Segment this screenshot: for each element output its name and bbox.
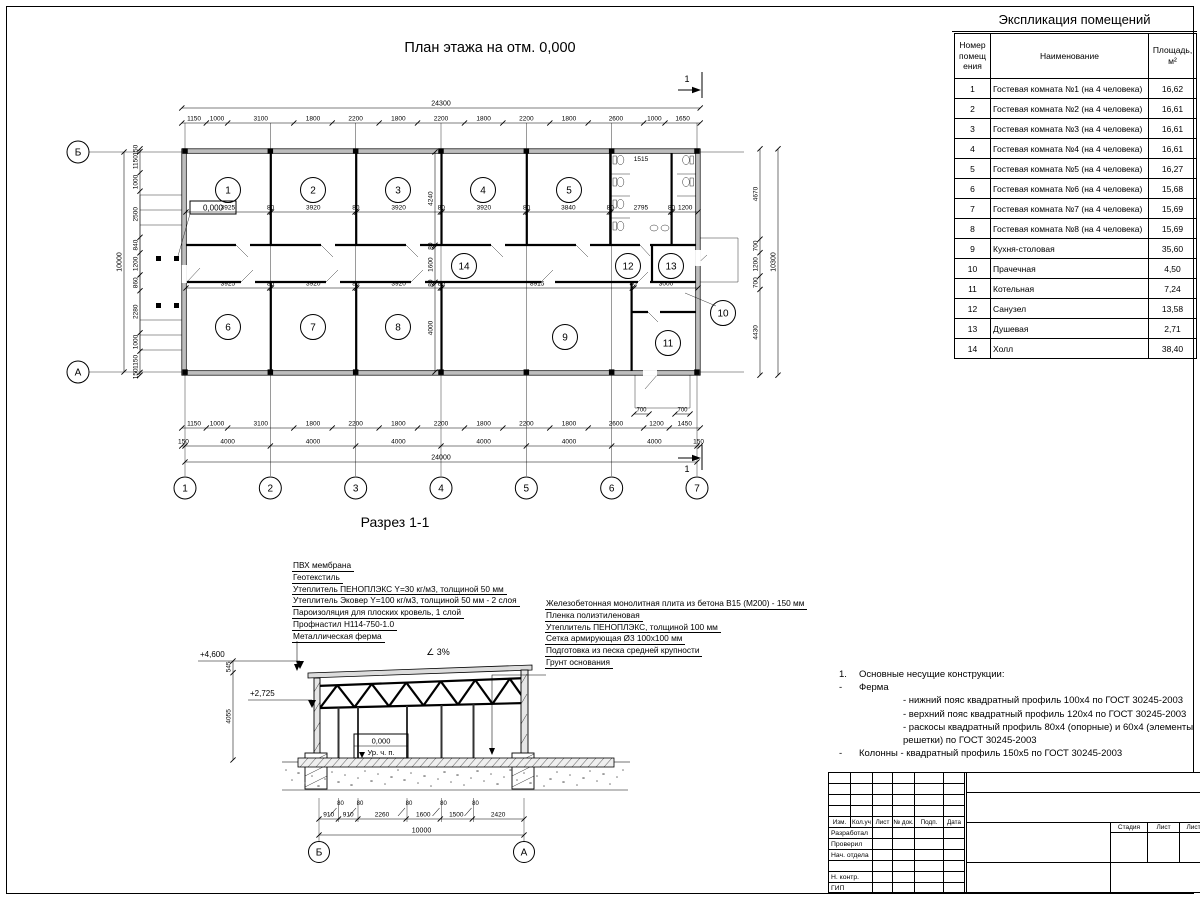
dim-label: 1000 bbox=[210, 116, 225, 123]
ground-dot bbox=[536, 775, 538, 777]
column-mark bbox=[438, 369, 444, 375]
room-area-cell: 13,58 bbox=[1149, 299, 1197, 319]
dim-label: 1800 bbox=[391, 421, 406, 428]
titleblock-cell bbox=[944, 839, 965, 850]
dim-label: 1000 bbox=[133, 174, 140, 189]
room-area-cell: 2,71 bbox=[1149, 319, 1197, 339]
dim-label: 0,000 bbox=[372, 737, 391, 746]
room-area-cell: 16,61 bbox=[1149, 139, 1197, 159]
dim-label: 3 bbox=[395, 186, 401, 197]
ground-dot bbox=[397, 769, 399, 771]
dim-label: 5 bbox=[524, 484, 530, 495]
titleblock-cell bbox=[873, 872, 893, 883]
dim-label: ∠ 3% bbox=[426, 647, 450, 657]
dim-leader bbox=[465, 808, 472, 816]
column-mark bbox=[182, 369, 188, 375]
dim-label: Б bbox=[75, 148, 82, 159]
ground-dot bbox=[602, 773, 604, 775]
ground-dot bbox=[337, 781, 339, 783]
truss-diagonal bbox=[424, 681, 441, 705]
ground-dot bbox=[569, 774, 571, 776]
dim-label: 80 bbox=[472, 801, 479, 807]
toilet-fixture bbox=[690, 178, 694, 186]
titleblock-cell bbox=[893, 861, 915, 872]
titleblock-cell bbox=[829, 861, 873, 872]
door-leaf bbox=[638, 272, 648, 282]
dim-label: 3920 bbox=[391, 205, 406, 212]
ground-dot bbox=[483, 780, 485, 782]
ground-dot bbox=[430, 785, 432, 787]
ground-dot bbox=[529, 782, 531, 784]
note-text: - раскосы квадратный профиль 80х4 (опорн… bbox=[859, 721, 1200, 747]
titleblock-cell bbox=[893, 784, 915, 795]
dim-label: 1200 bbox=[753, 257, 760, 272]
ground-dot bbox=[582, 777, 584, 779]
ground-dot bbox=[384, 783, 386, 785]
titleblock-stage-value bbox=[1110, 832, 1148, 863]
titleblock-cell: Изм. bbox=[829, 817, 851, 828]
toilet-fixture bbox=[683, 177, 690, 186]
door-opening bbox=[643, 370, 657, 376]
room-area-cell: 16,61 bbox=[1149, 119, 1197, 139]
dim-label: 1800 bbox=[476, 421, 491, 428]
note-item: -Ферма bbox=[833, 681, 1200, 694]
note-item: - раскосы квадратный профиль 80х4 (опорн… bbox=[833, 721, 1200, 747]
room-area-cell: 7,24 bbox=[1149, 279, 1197, 299]
room-name-cell: Гостевая комната №1 (на 4 человека) bbox=[991, 79, 1149, 99]
ground-dot bbox=[344, 774, 346, 776]
dim-label: 3100 bbox=[253, 421, 268, 428]
dim-label: 3925 bbox=[221, 281, 236, 288]
column-mark bbox=[156, 256, 161, 261]
col-header-area: Площадь, м² bbox=[1149, 34, 1197, 79]
room-number-cell: 3 bbox=[955, 119, 991, 139]
titleblock-cell-top bbox=[966, 772, 1200, 793]
dim-leader bbox=[398, 808, 405, 816]
note-item: - нижний пояс квадратный профиль 100х4 п… bbox=[833, 694, 1200, 707]
room-name-cell: Санузел bbox=[991, 299, 1149, 319]
dim-label: 700 bbox=[753, 240, 760, 251]
ground-dot bbox=[370, 780, 372, 782]
dim-label: 910 bbox=[343, 812, 354, 819]
room-name-cell: Гостевая комната №8 (на 4 человека) bbox=[991, 219, 1149, 239]
room-number-cell: 5 bbox=[955, 159, 991, 179]
dim-label: 8915 bbox=[530, 281, 545, 288]
dim-label: 4000 bbox=[391, 439, 406, 446]
dim-label: 6 bbox=[225, 323, 231, 334]
titleblock-cell-doc-code bbox=[966, 792, 1200, 823]
truss-diagonal bbox=[320, 685, 337, 708]
column bbox=[314, 678, 320, 758]
titleblock-cell bbox=[944, 773, 965, 784]
titleblock-cell-doc-name bbox=[966, 822, 1111, 863]
ground-dot bbox=[509, 769, 511, 771]
note-item: 1.Основные несущие конструкции: bbox=[833, 668, 1200, 681]
truss-diagonal bbox=[355, 684, 372, 707]
titleblock-cell bbox=[915, 883, 944, 894]
truss-top-chord bbox=[316, 678, 528, 686]
titleblock-cell bbox=[873, 784, 893, 795]
toilet-fixture bbox=[617, 177, 624, 186]
dim-label: 4000 bbox=[476, 439, 491, 446]
dim-label: Б bbox=[316, 848, 323, 859]
note-marker bbox=[833, 708, 859, 721]
section-cut-arrow bbox=[692, 455, 701, 461]
titleblock-cell bbox=[829, 806, 851, 817]
dim-label: 80 bbox=[337, 801, 344, 807]
dim-label: А bbox=[75, 368, 82, 379]
room-number-cell: 10 bbox=[955, 259, 991, 279]
dim-label: 1650 bbox=[675, 116, 690, 123]
dim-label: 1 bbox=[684, 74, 689, 84]
exterior-wall bbox=[182, 149, 187, 375]
titleblock-cell bbox=[873, 883, 893, 894]
drawing-sheet: План этажа на отм. 0,000 1234567БА15150,… bbox=[0, 0, 1200, 900]
truss-diagonal bbox=[406, 683, 423, 706]
dim-label: 3100 bbox=[253, 116, 268, 123]
dim-label: 24000 bbox=[431, 455, 451, 462]
dim-label: 6 bbox=[609, 484, 615, 495]
ground-dot bbox=[616, 776, 618, 778]
note-marker bbox=[833, 721, 859, 747]
dim-label: 1500 bbox=[449, 812, 464, 819]
door-leaf bbox=[640, 245, 650, 256]
ground-dot bbox=[403, 779, 405, 781]
titleblock-cell bbox=[915, 839, 944, 850]
truss-diagonal bbox=[337, 685, 354, 707]
leader-arrow bbox=[294, 664, 300, 671]
ground-dot bbox=[562, 781, 564, 783]
roof-deck bbox=[308, 665, 532, 678]
dim-label: 4000 bbox=[306, 439, 321, 446]
table-row: 9Кухня-столовая35,60 bbox=[955, 239, 1197, 259]
ground-dot bbox=[423, 775, 425, 777]
door-leaf bbox=[645, 375, 657, 389]
ground-dot bbox=[556, 771, 558, 773]
dim-label: Ур. ч. п. bbox=[368, 748, 395, 757]
table-row: 1Гостевая комната №1 (на 4 человека)16,6… bbox=[955, 79, 1197, 99]
column-mark bbox=[268, 369, 274, 375]
dim-label: 9 bbox=[562, 333, 568, 344]
dim-label: 3920 bbox=[391, 281, 406, 288]
titleblock-cell bbox=[893, 773, 915, 784]
titleblock-cell bbox=[944, 806, 965, 817]
dim-label: 2600 bbox=[609, 421, 624, 428]
dim-label: 2200 bbox=[519, 116, 534, 123]
titleblock-sheets-value bbox=[1179, 832, 1200, 863]
titleblock-cell bbox=[873, 828, 893, 839]
dim-label: 3920 bbox=[477, 205, 492, 212]
dim-leader bbox=[433, 808, 440, 816]
room-name-cell: Котельная bbox=[991, 279, 1149, 299]
dim-label: 4000 bbox=[562, 439, 577, 446]
dim-label: 910 bbox=[323, 812, 334, 819]
dim-label: А bbox=[521, 848, 528, 859]
dim-label: 4055 bbox=[226, 709, 233, 724]
ground-dot bbox=[437, 778, 439, 780]
titleblock-cell bbox=[915, 872, 944, 883]
titleblock-cell bbox=[873, 839, 893, 850]
toilet-fixture bbox=[683, 155, 690, 164]
column-mark bbox=[609, 369, 615, 375]
room-name-cell: Душевая bbox=[991, 319, 1149, 339]
dim-label: 80 bbox=[406, 801, 413, 807]
section-drawing: +4,600+2,7250,000Ур. ч. п.∠ 3%5454055808… bbox=[150, 545, 850, 900]
titleblock-cell bbox=[873, 795, 893, 806]
column-mark bbox=[694, 369, 700, 375]
door-leaf bbox=[241, 270, 253, 282]
door-opening bbox=[181, 265, 187, 283]
truss-diagonal bbox=[372, 684, 389, 706]
dim-label: 1200 bbox=[678, 205, 693, 212]
room-area-cell: 38,40 bbox=[1149, 339, 1197, 359]
dim-label: 1000 bbox=[647, 116, 662, 123]
ground-dot bbox=[443, 771, 445, 773]
dim-label: 700 bbox=[753, 277, 760, 288]
ground-dot bbox=[377, 773, 379, 775]
dim-label: 3925 bbox=[221, 205, 236, 212]
titleblock-cell bbox=[893, 850, 915, 861]
leader-line bbox=[492, 675, 546, 750]
toilet-fixture bbox=[617, 199, 624, 208]
table-row: 5Гостевая комната №5 (на 4 человека)16,2… bbox=[955, 159, 1197, 179]
dim-label: 1000 bbox=[133, 334, 140, 349]
room-area-cell: 15,69 bbox=[1149, 199, 1197, 219]
titleblock-cell bbox=[944, 850, 965, 861]
explication-title: Экспликация помещений bbox=[952, 8, 1197, 32]
room-name-cell: Холл bbox=[991, 339, 1149, 359]
room-area-cell: 15,69 bbox=[1149, 219, 1197, 239]
ground-dot bbox=[490, 773, 492, 775]
dim-label: 1150 bbox=[187, 116, 201, 123]
ground-dot bbox=[549, 778, 551, 780]
titleblock-cell bbox=[829, 784, 851, 795]
dim-label: 4 bbox=[480, 186, 486, 197]
floor-plan-drawing: 1234567БА15150,0001234567891011121314243… bbox=[40, 60, 820, 510]
table-row: 10Прачечная4,50 bbox=[955, 259, 1197, 279]
ground-dot bbox=[456, 774, 458, 776]
sink-fixture bbox=[650, 225, 658, 231]
dim-label: 1600 bbox=[416, 812, 431, 819]
dim-label: 5 bbox=[566, 186, 572, 197]
column-mark bbox=[609, 148, 615, 154]
column-mark bbox=[182, 148, 188, 154]
ground-dot bbox=[516, 779, 518, 781]
table-row: 11Котельная7,24 bbox=[955, 279, 1197, 299]
column-mark bbox=[268, 148, 274, 154]
room-area-cell: 15,68 bbox=[1149, 179, 1197, 199]
titleblock-cell bbox=[915, 773, 944, 784]
dim-label: 150 bbox=[693, 439, 704, 446]
ground-dot bbox=[364, 770, 366, 772]
titleblock-sheet-value bbox=[1147, 832, 1180, 863]
dim-label: 24300 bbox=[431, 101, 451, 108]
col-header-name: Наименование bbox=[991, 34, 1149, 79]
ground-dot bbox=[470, 777, 472, 779]
dim-label: 1800 bbox=[306, 421, 321, 428]
column-mark bbox=[438, 148, 444, 154]
dim-label: 1150 bbox=[133, 354, 140, 368]
titleblock-cell bbox=[873, 850, 893, 861]
dim-label: 2 bbox=[268, 484, 274, 495]
titleblock-cell bbox=[944, 795, 965, 806]
porch-outline bbox=[140, 195, 182, 350]
ground-dot bbox=[503, 776, 505, 778]
table-header-row: Номер помещ ения Наименование Площадь, м… bbox=[955, 34, 1197, 79]
note-marker bbox=[833, 694, 859, 707]
titleblock-cell: Н. контр. bbox=[829, 872, 873, 883]
column-mark bbox=[353, 148, 359, 154]
note-text: Колонны - квадратный профиль 150х5 по ГО… bbox=[859, 747, 1200, 760]
dim-label: 840 bbox=[133, 239, 140, 250]
dim-label: 7 bbox=[694, 484, 700, 495]
dim-label: 1800 bbox=[306, 116, 321, 123]
column-mark bbox=[156, 303, 161, 308]
titleblock-cell bbox=[893, 872, 915, 883]
dim-label: 545 bbox=[226, 661, 233, 672]
dim-label: 1150 bbox=[187, 421, 201, 428]
titleblock-cell bbox=[873, 806, 893, 817]
dim-label: 1600 bbox=[428, 257, 435, 272]
dim-label: 2795 bbox=[634, 205, 649, 212]
dim-label: 2600 bbox=[609, 116, 624, 123]
column-mark bbox=[694, 148, 700, 154]
titleblock-cell bbox=[873, 773, 893, 784]
titleblock-cell bbox=[944, 872, 965, 883]
dim-label: 1800 bbox=[562, 116, 577, 123]
ground-dot bbox=[543, 785, 545, 787]
door-opening bbox=[695, 250, 701, 266]
dim-label: 1 bbox=[182, 484, 188, 495]
room-number-cell: 9 bbox=[955, 239, 991, 259]
dim-label: 3 bbox=[353, 484, 359, 495]
room-number-cell: 13 bbox=[955, 319, 991, 339]
note-item: - верхний пояс квадратный профиль 120х4 … bbox=[833, 708, 1200, 721]
table-row: 3Гостевая комната №3 (на 4 человека)16,6… bbox=[955, 119, 1197, 139]
column-mark bbox=[353, 369, 359, 375]
titleblock-cell-big bbox=[1110, 862, 1200, 893]
dim-label: 1200 bbox=[133, 256, 140, 271]
toilet-fixture bbox=[613, 156, 617, 164]
dim-label: 2420 bbox=[491, 812, 506, 819]
ground-dot bbox=[496, 783, 498, 785]
dim-label: 1450 bbox=[677, 421, 692, 428]
titleblock-cell: Кол.уч bbox=[851, 817, 873, 828]
door-leaf bbox=[411, 270, 423, 282]
room-number-cell: 8 bbox=[955, 219, 991, 239]
dim-label: 1800 bbox=[391, 116, 406, 123]
room-number-cell: 1 bbox=[955, 79, 991, 99]
ground-dot bbox=[609, 783, 611, 785]
table-row: 13Душевая2,71 bbox=[955, 319, 1197, 339]
table-row: 2Гостевая комната №2 (на 4 человека)16,6… bbox=[955, 99, 1197, 119]
leader-arrow bbox=[489, 748, 495, 755]
note-text: Основные несущие конструкции: bbox=[859, 668, 1200, 681]
room-name-cell: Гостевая комната №3 (на 4 человека) bbox=[991, 119, 1149, 139]
dim-label: 3000 bbox=[659, 281, 674, 288]
titleblock-cell bbox=[829, 773, 851, 784]
dim-label: 2200 bbox=[348, 116, 363, 123]
room-number-cell: 7 bbox=[955, 199, 991, 219]
ground-dot bbox=[576, 784, 578, 786]
door-leaf bbox=[648, 312, 658, 322]
table-row: 8Гостевая комната №8 (на 4 человека)15,6… bbox=[955, 219, 1197, 239]
truss-diagonal bbox=[458, 680, 475, 705]
titleblock-cell bbox=[944, 883, 965, 894]
section-cut-arrow bbox=[692, 87, 701, 93]
dim-label: 8 bbox=[395, 323, 401, 334]
dim-label: 10 bbox=[717, 309, 729, 320]
dim-label: 2200 bbox=[434, 421, 449, 428]
ground-dot bbox=[350, 784, 352, 786]
dim-label: 3920 bbox=[306, 205, 321, 212]
ground-dot bbox=[297, 772, 299, 774]
room-number-cell: 2 bbox=[955, 99, 991, 119]
ground-dot bbox=[331, 771, 333, 773]
titleblock-cell bbox=[915, 861, 944, 872]
elevation-arrow bbox=[359, 752, 365, 758]
titleblock-cell bbox=[851, 806, 873, 817]
titleblock-cell bbox=[915, 795, 944, 806]
room-number-cell: 11 bbox=[955, 279, 991, 299]
titleblock-cell: ГИП bbox=[829, 883, 873, 894]
door-leaf bbox=[576, 245, 588, 257]
dim-label: 2200 bbox=[348, 421, 363, 428]
dim-label: 4000 bbox=[647, 439, 662, 446]
titleblock-cell bbox=[893, 883, 915, 894]
room-number-cell: 14 bbox=[955, 339, 991, 359]
titleblock-cell bbox=[893, 795, 915, 806]
titleblock-cell bbox=[915, 806, 944, 817]
room-number-cell: 12 bbox=[955, 299, 991, 319]
titleblock-cell bbox=[944, 861, 965, 872]
dim-label: +4,600 bbox=[200, 650, 225, 659]
column-mark bbox=[174, 303, 179, 308]
toilet-fixture bbox=[690, 156, 694, 164]
ground-dot bbox=[596, 780, 598, 782]
dim-label: 2280 bbox=[133, 304, 140, 319]
ground-dot bbox=[324, 778, 326, 780]
ground-dot bbox=[304, 782, 306, 784]
truss-diagonal bbox=[475, 680, 492, 704]
dim-label: 3920 bbox=[306, 281, 321, 288]
note-text: - верхний пояс квадратный профиль 120х4 … bbox=[859, 708, 1200, 721]
titleblock-left-grid: Изм.Кол.учЛист№ док.Подп.ДатаРазработалП… bbox=[828, 772, 968, 893]
dim-label: 4 bbox=[438, 484, 444, 495]
dim-label: 4000 bbox=[428, 320, 435, 335]
titleblock-cell: № док. bbox=[893, 817, 915, 828]
dim-label: 1200 bbox=[649, 421, 664, 428]
dim-label: 2200 bbox=[434, 116, 449, 123]
ground-dot bbox=[317, 785, 319, 787]
dim-label: 10000 bbox=[412, 828, 432, 835]
table-row: 12Санузел13,58 bbox=[955, 299, 1197, 319]
dim-label: 4240 bbox=[428, 191, 435, 206]
dim-label: 2 bbox=[310, 186, 316, 197]
table-row: 4Гостевая комната №4 (на 4 человека)16,6… bbox=[955, 139, 1197, 159]
column-mark bbox=[174, 256, 179, 261]
room-name-cell: Гостевая комната №6 (на 4 человека) bbox=[991, 179, 1149, 199]
room-number-cell: 4 bbox=[955, 139, 991, 159]
room-name-cell: Гостевая комната №5 (на 4 человека) bbox=[991, 159, 1149, 179]
toilet-fixture bbox=[617, 221, 624, 230]
section-title: Разрез 1-1 bbox=[320, 514, 470, 530]
room-area-cell: 16,62 bbox=[1149, 79, 1197, 99]
titleblock-cell bbox=[944, 784, 965, 795]
room-name-cell: Гостевая комната №4 (на 4 человека) bbox=[991, 139, 1149, 159]
dim-label: 2260 bbox=[375, 812, 390, 819]
explication-table: Номер помещ ения Наименование Площадь, м… bbox=[954, 33, 1197, 359]
